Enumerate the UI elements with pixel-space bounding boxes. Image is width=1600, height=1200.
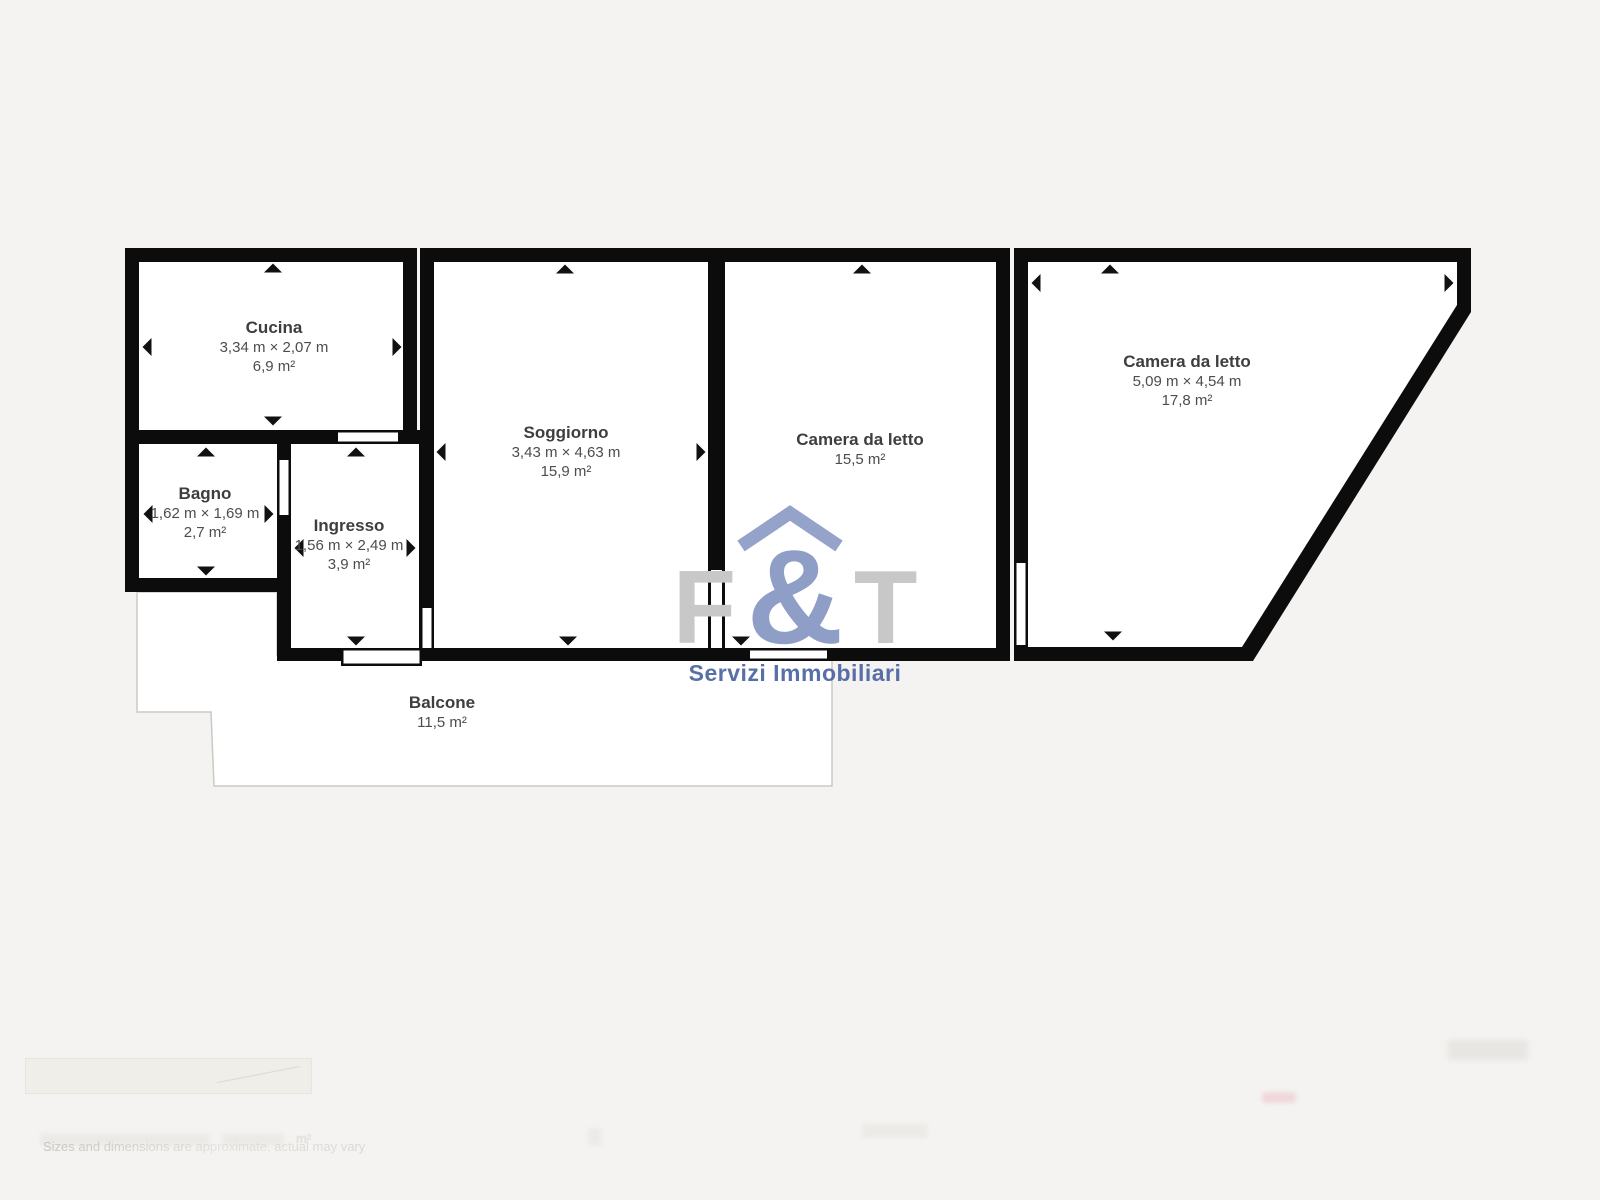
room-label-soggiorno: Soggiorno 3,43 m × 4,63 m 15,9 m² <box>512 423 621 481</box>
logo-tagline: Servizi Immobiliari <box>689 660 902 686</box>
door-opening-camera-camera <box>1017 563 1026 645</box>
faded-placeholder-box <box>25 1058 312 1094</box>
door-opening-cucina-ingresso <box>338 433 398 442</box>
room-dimensions: 5,09 m × 4,54 m <box>1123 372 1251 391</box>
room-label-bagno: Bagno 1,62 m × 1,69 m 2,7 m² <box>151 484 260 542</box>
room-area: 2,7 m² <box>151 523 260 542</box>
door-opening-ingresso-soggiorno <box>423 608 432 648</box>
gray-smudge <box>1448 1040 1528 1060</box>
logo-letter-t: T <box>854 550 918 666</box>
room-area: 6,9 m² <box>220 357 329 376</box>
room-label-cucina: Cucina 3,34 m × 2,07 m 6,9 m² <box>220 318 329 376</box>
room-label-camera-1: Camera da letto 15,5 m² <box>796 430 924 469</box>
room-label-ingresso: Ingresso 1,56 m × 2,49 m 3,9 m² <box>295 516 404 574</box>
room-name: Soggiorno <box>512 423 621 443</box>
room-label-balcone: Balcone 11,5 m² <box>409 693 475 732</box>
room-name: Camera da letto <box>796 430 924 450</box>
door-opening-bagno-ingresso <box>280 460 289 515</box>
logo-letter-f: F <box>673 550 737 666</box>
disclaimer-text: Sizes and dimensions are approximate, ac… <box>43 1139 365 1154</box>
room-name: Camera da letto <box>1123 352 1251 372</box>
faint-text-smudge <box>862 1124 928 1138</box>
faded-diagonal-line <box>217 1066 301 1083</box>
room-name: Balcone <box>409 693 475 713</box>
room-camera-2 <box>1028 262 1457 647</box>
floor-plan-page: F & T Servizi Immobiliari Cucina 3,34 m … <box>0 0 1600 1200</box>
room-area: 11,5 m² <box>409 713 475 732</box>
room-area: 15,9 m² <box>512 462 621 481</box>
room-dimensions: 1,56 m × 2,49 m <box>295 536 404 555</box>
balcony-door-ingresso <box>344 651 420 664</box>
room-area: 17,8 m² <box>1123 391 1251 410</box>
room-name: Bagno <box>151 484 260 504</box>
room-dimensions: 1,62 m × 1,69 m <box>151 504 260 523</box>
pink-smudge <box>1262 1092 1296 1103</box>
room-name: Ingresso <box>295 516 404 536</box>
room-dimensions: 3,34 m × 2,07 m <box>220 338 329 357</box>
room-label-camera-2: Camera da letto 5,09 m × 4,54 m 17,8 m² <box>1123 352 1251 410</box>
room-dimensions: 3,43 m × 4,63 m <box>512 443 621 462</box>
floor-plan-drawing: F & T Servizi Immobiliari <box>0 0 1600 1200</box>
room-area: 3,9 m² <box>295 555 404 574</box>
faint-text-smudge <box>588 1128 602 1146</box>
logo-ampersand: & <box>747 523 844 672</box>
room-area: 15,5 m² <box>796 450 924 469</box>
room-name: Cucina <box>220 318 329 338</box>
